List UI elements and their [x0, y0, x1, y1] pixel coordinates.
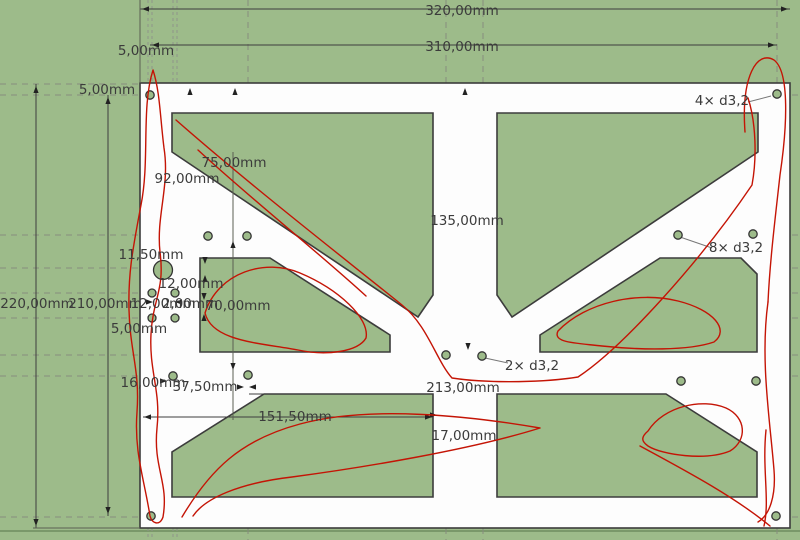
dim-label-8xd32[interactable]: 8× d3,2 [709, 240, 763, 256]
dim-label-320[interactable]: 320,00mm [425, 3, 499, 19]
hole-lower-row[interactable] [752, 377, 760, 385]
dim-label-5a[interactable]: 5,00mm [118, 43, 174, 59]
hole-corner-top-right[interactable] [773, 90, 781, 98]
drawing-stage: 320,00mm 310,00mm 5,00mm 5,00mm 4× d3,2 … [0, 0, 800, 540]
dim-label-135[interactable]: 135,00mm [430, 213, 504, 229]
hole-mid-row[interactable] [749, 230, 757, 238]
hole-center[interactable] [478, 352, 486, 360]
drawing-canvas[interactable]: 320,00mm 310,00mm 5,00mm 5,00mm 4× d3,2 … [0, 0, 800, 540]
dim-label-15150[interactable]: 151,50mm [258, 409, 332, 425]
hole-mid-row[interactable] [204, 232, 212, 240]
dim-label-4xd32[interactable]: 4× d3,2 [695, 93, 749, 109]
hole-lower-row[interactable] [244, 371, 252, 379]
dim-label-220[interactable]: 220,00mm [0, 296, 74, 312]
dim-label-210[interactable]: 210,00mm [68, 296, 142, 312]
hole-corner-bottom-right[interactable] [772, 512, 780, 520]
dim-label-75[interactable]: 75,00mm [202, 155, 267, 171]
hole-center[interactable] [442, 351, 450, 359]
dim-label-5c[interactable]: 5,00mm [111, 321, 167, 337]
dim-label-3750[interactable]: 37,50mm [173, 379, 238, 395]
hole-lower-row[interactable] [677, 377, 685, 385]
dim-label-1150[interactable]: 11,50mm [119, 247, 184, 263]
dim-label-5b[interactable]: 5,00mm [79, 82, 135, 98]
hole-mid-row[interactable] [674, 231, 682, 239]
dim-label-1200a[interactable]: 12,00mm [159, 276, 224, 292]
dim-label-310[interactable]: 310,00mm [425, 39, 499, 55]
dim-label-92[interactable]: 92,00mm [155, 171, 220, 187]
dim-label-17[interactable]: 17,00mm [432, 428, 497, 444]
hole-cluster[interactable] [171, 314, 179, 322]
hole-mid-row[interactable] [243, 232, 251, 240]
dim-label-213[interactable]: 213,00mm [426, 380, 500, 396]
dim-label-2xd32[interactable]: 2× d3,2 [505, 358, 559, 374]
dim-label-70[interactable]: 70,00mm [206, 298, 271, 314]
